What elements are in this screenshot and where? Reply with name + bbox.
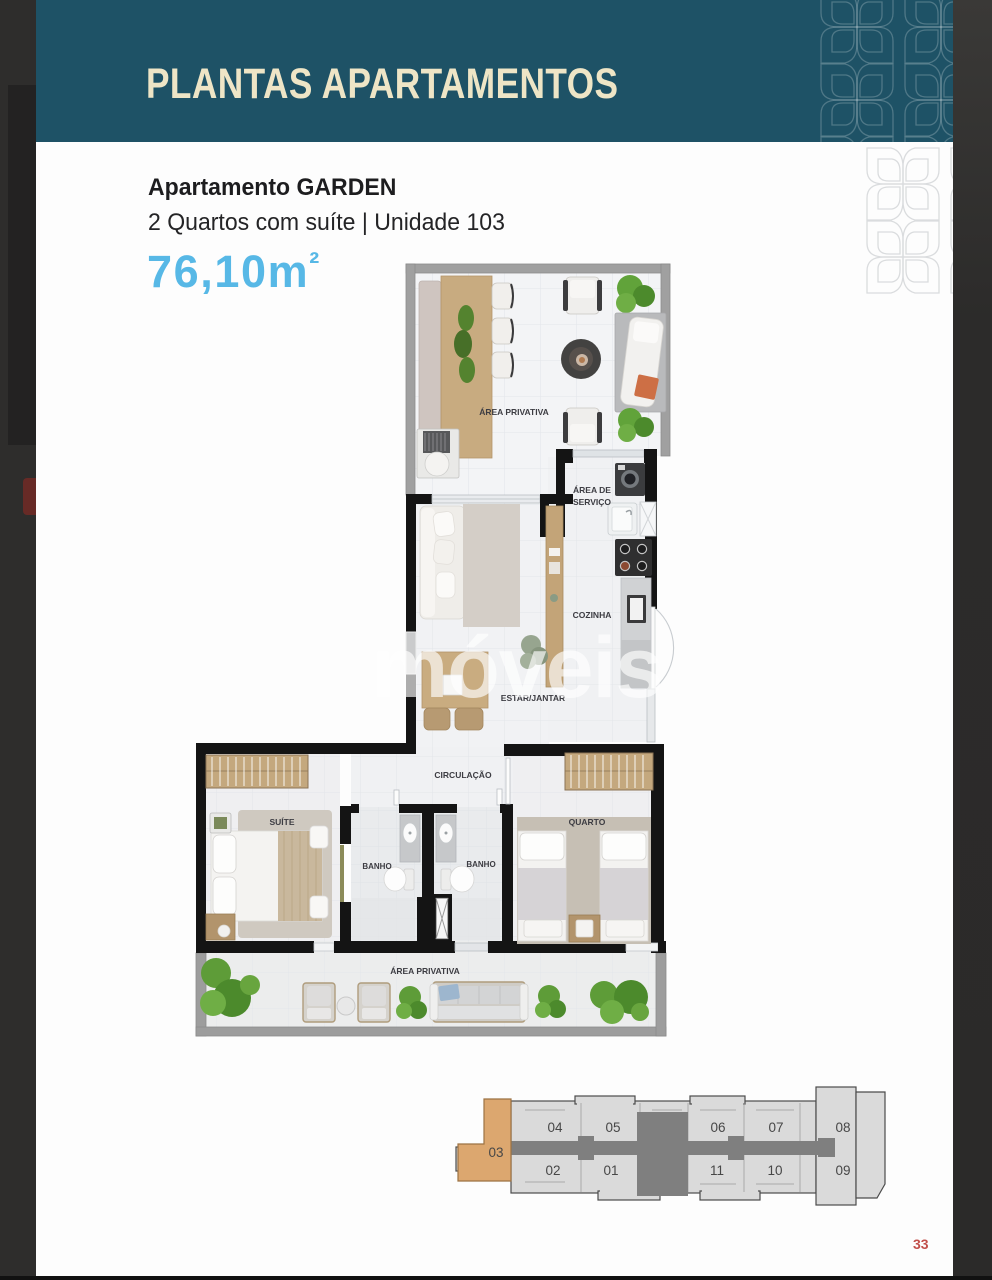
svg-text:04: 04 [547, 1120, 563, 1135]
svg-text:ÁREA DE: ÁREA DE [573, 485, 611, 495]
svg-text:11: 11 [710, 1163, 724, 1178]
svg-text:ÁREA PRIVATIVA: ÁREA PRIVATIVA [390, 966, 460, 976]
svg-text:móveis: móveis [372, 620, 662, 716]
svg-text:07: 07 [768, 1120, 783, 1135]
svg-text:QUARTO: QUARTO [569, 817, 606, 827]
svg-text:10: 10 [767, 1163, 782, 1178]
svg-text:BANHO: BANHO [362, 862, 391, 871]
svg-text:09: 09 [835, 1163, 850, 1178]
svg-text:03: 03 [488, 1145, 503, 1160]
svg-text:06: 06 [710, 1120, 725, 1135]
svg-text:01: 01 [603, 1163, 618, 1178]
svg-text:BANHO: BANHO [466, 860, 495, 869]
svg-text:05: 05 [605, 1120, 620, 1135]
svg-text:CIRCULAÇÃO: CIRCULAÇÃO [434, 770, 492, 780]
svg-text:ÁREA PRIVATIVA: ÁREA PRIVATIVA [479, 407, 549, 417]
svg-text:08: 08 [835, 1120, 850, 1135]
svg-text:COZINHA: COZINHA [573, 610, 612, 620]
svg-text:02: 02 [545, 1163, 560, 1178]
svg-text:SERVIÇO: SERVIÇO [573, 497, 611, 507]
svg-text:SUÍTE: SUÍTE [269, 817, 294, 827]
